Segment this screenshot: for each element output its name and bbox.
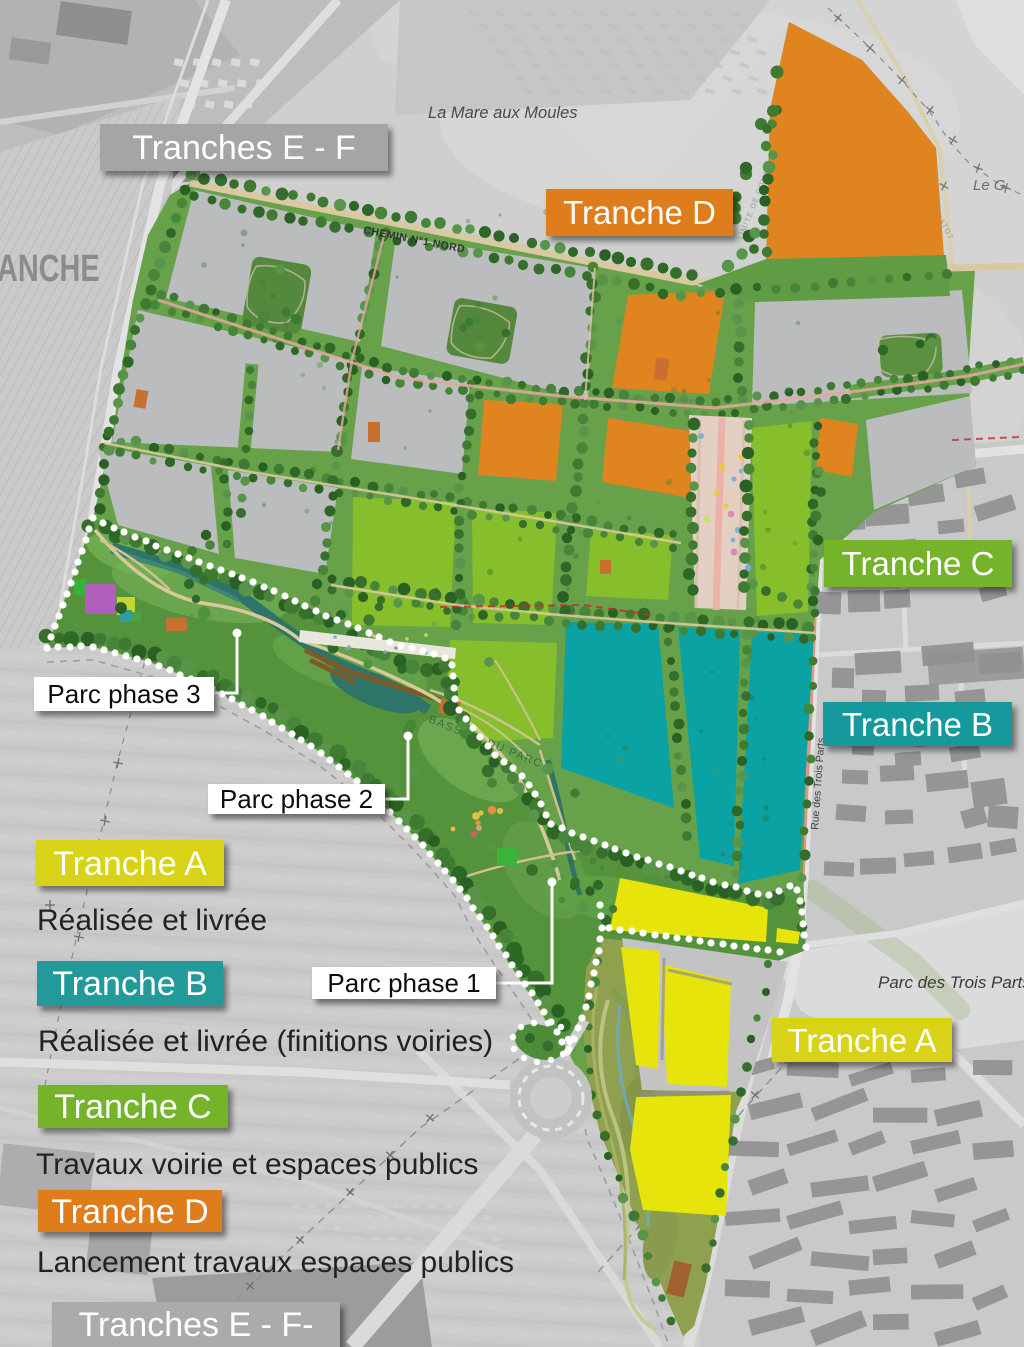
svg-text:Tranche C: Tranche C: [842, 545, 995, 582]
svg-text:Lancement travaux espaces publ: Lancement travaux espaces publics: [37, 1246, 514, 1279]
svg-text:Réalisée et livrée (finitions: Réalisée et livrée (finitions voiries): [38, 1025, 493, 1058]
svg-text:Le G: Le G: [973, 177, 1006, 194]
svg-text:Parc des Trois Parts: Parc des Trois Parts: [878, 973, 1024, 992]
svg-text:Travaux voirie et espaces publ: Travaux voirie et espaces publics: [36, 1148, 478, 1181]
svg-text:Tranches E - F-: Tranches E - F-: [79, 1306, 314, 1344]
svg-text:Parc phase 2: Parc phase 2: [220, 784, 373, 814]
svg-text:ANCHE: ANCHE: [0, 247, 100, 290]
svg-text:Tranche B: Tranche B: [842, 706, 993, 743]
svg-text:Tranches E - F: Tranches E - F: [132, 129, 356, 167]
svg-text:Tranche B: Tranche B: [52, 965, 208, 1003]
svg-text:Tranche D: Tranche D: [51, 1193, 208, 1231]
svg-text:Tranche A: Tranche A: [53, 845, 207, 883]
svg-text:Parc phase 1: Parc phase 1: [327, 968, 480, 998]
svg-text:Parc phase 3: Parc phase 3: [47, 679, 200, 709]
svg-text:Tranche A: Tranche A: [787, 1022, 936, 1059]
svg-text:Réalisée et livrée: Réalisée et livrée: [37, 904, 267, 937]
svg-text:Tranche C: Tranche C: [54, 1088, 211, 1126]
svg-text:Tranche D: Tranche D: [563, 194, 716, 231]
svg-text:La Mare aux Moules: La Mare aux Moules: [428, 104, 578, 122]
